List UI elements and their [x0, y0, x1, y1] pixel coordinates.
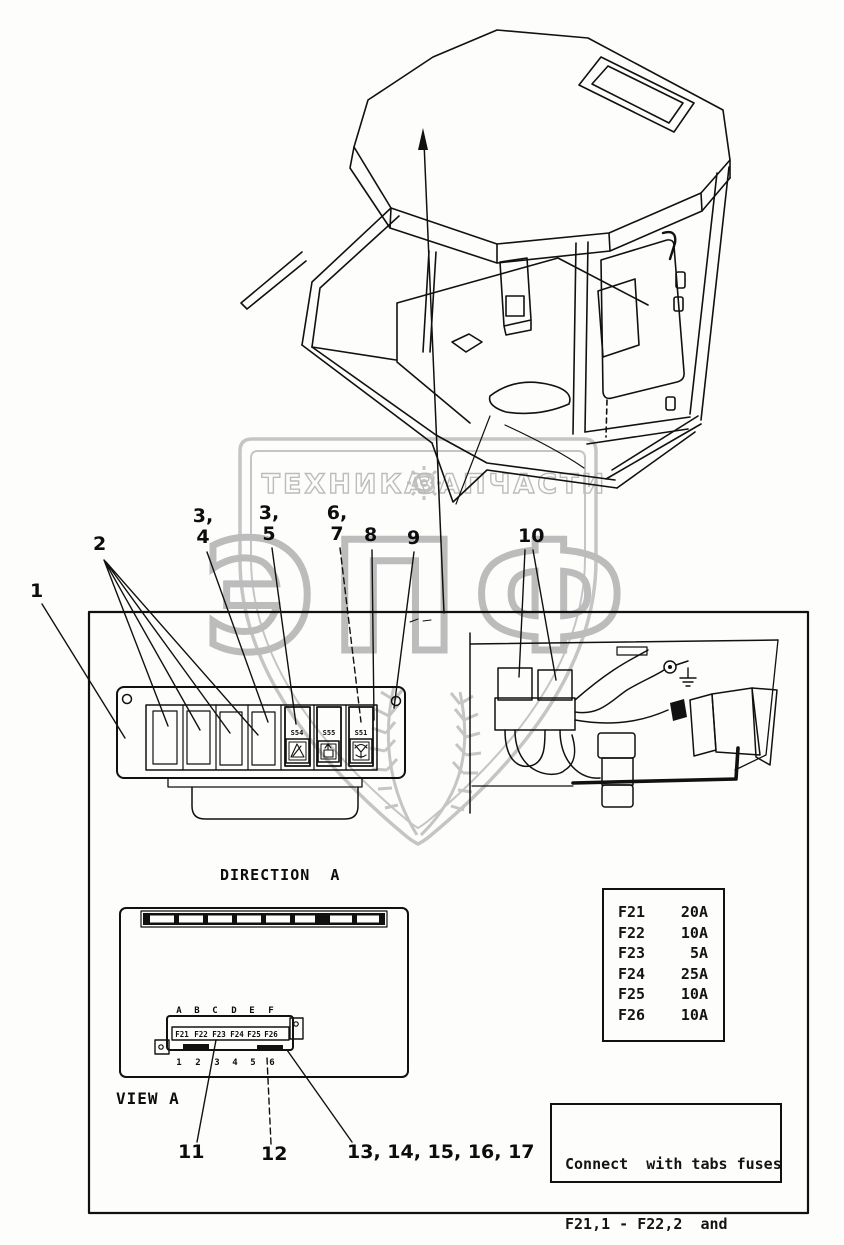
connection-note-box: Connect with tabs fuses F21,1 - F22,2 an… [550, 1103, 782, 1183]
fuse-amp: 25A [681, 964, 708, 985]
screw-hole [123, 695, 132, 704]
fuse-table-row: F25 10A [618, 984, 708, 1005]
screw-hole [294, 1022, 298, 1026]
fuse-number: 5 [250, 1058, 255, 1068]
callout-3-5-bottom: 5 [262, 523, 275, 545]
callout-3-4-top: 3, [193, 505, 213, 527]
callout-13-17: 13, 14, 15, 16, 17 [347, 1143, 535, 1162]
fan-icon [355, 745, 367, 759]
fuse-number: 6 [269, 1058, 274, 1068]
fuse-id: F21 [618, 902, 645, 923]
callout-3-4: 3, 4 [190, 506, 216, 548]
fuse-id: F24 [618, 964, 645, 985]
drawing-layer: S54 S55 S51 A B C D E F F21 F22 F23 F24 … [0, 0, 844, 1245]
fuse-id: F25 [618, 984, 645, 1005]
callout-9: 9 [407, 529, 420, 548]
fuse-letter: B [194, 1006, 200, 1016]
leader-3-5 [272, 548, 296, 724]
fuse-amp: 10A [681, 984, 708, 1005]
callout-12: 12 [261, 1145, 287, 1164]
bottom-connector [598, 733, 635, 807]
relay-wiring-drawing [472, 650, 777, 807]
fuse-letter: A [176, 1006, 182, 1016]
fuse-strip-label: F26 [264, 1030, 278, 1039]
fuse-id: F22 [618, 923, 645, 944]
fuse-letter: F [268, 1006, 273, 1016]
switch-label-s51: S51 [355, 729, 368, 737]
callout-8: 8 [364, 526, 377, 545]
fuse-strip-label: F22 [194, 1030, 208, 1039]
roof-hatch [579, 57, 694, 132]
fuse-letter: D [231, 1006, 237, 1016]
fuse-number: 1 [176, 1058, 181, 1068]
direction-arrow [418, 128, 444, 613]
callout-1: 1 [30, 582, 43, 601]
fuse-id: F26 [618, 1005, 645, 1026]
leader-2-fan [104, 560, 258, 735]
fuse-strip-label: F25 [247, 1030, 261, 1039]
fuse-id: F23 [618, 943, 645, 964]
callout-6-7-bottom: 7 [330, 523, 343, 545]
leader-9 [394, 552, 414, 708]
screw-hole [159, 1045, 163, 1049]
fuse-number: 4 [232, 1058, 238, 1068]
leader-8 [372, 550, 374, 720]
view-a-drawing [120, 908, 408, 1077]
note-line: F21,1 - F22,2 and [565, 1214, 780, 1234]
fuse-table-row: F23 5A [618, 943, 708, 964]
callout-3-5: 3, 5 [256, 503, 282, 545]
leader-6-7 [340, 548, 361, 722]
fuse-strip-label: F24 [230, 1030, 244, 1039]
leader-12 [267, 1058, 271, 1144]
switch-label-s54: S54 [291, 729, 304, 737]
ground-symbol-icon [680, 668, 696, 686]
relay [498, 668, 532, 700]
fuse-amp: 10A [681, 1005, 708, 1026]
fuse-amp: 20A [681, 902, 708, 923]
seat-base [490, 382, 570, 413]
note-line: Connect with tabs fuses [565, 1154, 780, 1174]
fuse-strip-label: F21 [175, 1030, 189, 1039]
washer-icon [324, 744, 333, 757]
wiper-icon [291, 744, 304, 757]
relay-base [495, 698, 575, 730]
fuse-letter: E [249, 1006, 254, 1016]
callout-3-4-bottom: 4 [196, 526, 209, 548]
fuse-letter: C [212, 1006, 217, 1016]
blank-switch-opening [187, 711, 210, 764]
fuse-amp: 10A [681, 923, 708, 944]
fuse-rating-table: F21 20A F22 10A F23 5A F24 25A F25 10A F… [602, 888, 725, 1042]
switch-label-s55: S55 [323, 729, 336, 737]
blank-switch-opening [220, 712, 242, 765]
catalog-page: ТЕХНИКА ЗАПЧАСТИ ЭПФ [0, 0, 844, 1245]
fuse-table-row: F26 10A [618, 1005, 708, 1026]
callout-3-5-top: 3, [259, 502, 279, 524]
callout-6-7-top: 6, [327, 502, 347, 524]
callout-6-7: 6, 7 [324, 503, 350, 545]
fuse-number: 3 [214, 1058, 219, 1068]
right-connector [670, 688, 777, 765]
callout-10: 10 [518, 527, 544, 546]
direction-a-label: DIRECTION A [220, 866, 340, 884]
ground-lug-icon [664, 661, 688, 673]
leader-10 [519, 550, 556, 680]
door-handle [663, 232, 675, 259]
fuse-strip-label: F23 [212, 1030, 226, 1039]
rear-housing [192, 787, 358, 819]
callout-11: 11 [178, 1143, 204, 1162]
leader-13-17 [287, 1050, 352, 1142]
fuse-table-row: F24 25A [618, 964, 708, 985]
fuse-amp: 5A [690, 943, 708, 964]
view-a-label: VIEW A [116, 1089, 180, 1108]
fuse-number: 2 [195, 1058, 200, 1068]
blank-switch-opening [252, 712, 275, 765]
leader-1 [42, 604, 125, 738]
fuse-table-row: F22 10A [618, 923, 708, 944]
cab-drawing [241, 30, 730, 504]
leader-3-4 [207, 552, 268, 722]
fuse-table-row: F21 20A [618, 902, 708, 923]
leader-11 [197, 1040, 216, 1142]
callout-2: 2 [93, 535, 106, 554]
